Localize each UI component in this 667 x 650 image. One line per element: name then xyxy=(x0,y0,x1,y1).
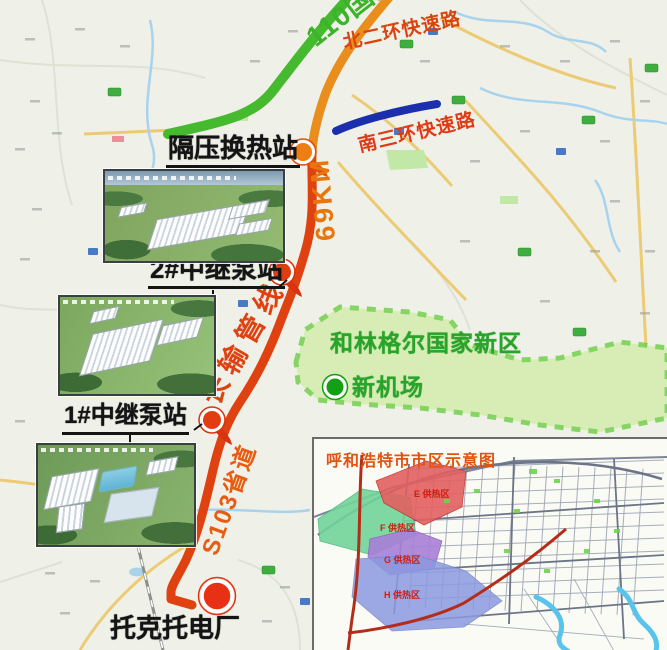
power-plant-marker xyxy=(199,578,236,615)
pipeline-distance-label: 69KM xyxy=(306,156,340,242)
new-area-label: 和林格尔国家新区 xyxy=(330,332,522,355)
inset-title: 呼和浩特市市区示意图 xyxy=(326,447,496,471)
warehouse-building xyxy=(89,305,119,323)
photo-caption-strip xyxy=(41,448,153,452)
zone-H-label: H 供热区 xyxy=(384,588,420,601)
pump-station-1-photo xyxy=(36,443,196,547)
city-inset-map: 呼和浩特市市区示意图 E 供热区 F 供热区 G 供热区 H 供热区 xyxy=(312,437,667,650)
warehouse-building xyxy=(146,456,179,476)
heat-exchange-station-photo xyxy=(103,169,285,263)
airport-label: 新机场 xyxy=(352,376,424,399)
zone-G-label: G 供热区 xyxy=(384,553,421,566)
pump-station-1-label: 1#中继泵站 xyxy=(62,404,189,435)
pond xyxy=(99,465,138,492)
warehouse-building xyxy=(228,199,270,220)
photo-ground xyxy=(38,445,194,545)
warehouse-building xyxy=(118,202,148,218)
heat-exchange-station-label: 隔压换热站 xyxy=(166,135,300,168)
pump-station-2-photo xyxy=(58,295,216,396)
photo-ground xyxy=(60,297,214,394)
inset-heat-zones xyxy=(318,461,502,631)
office-building xyxy=(55,503,84,533)
photo-caption-strip xyxy=(108,176,236,180)
new-area-zone xyxy=(296,307,667,432)
power-plant-label: 托克托电厂 xyxy=(110,615,240,641)
zone-F-label: F 供热区 xyxy=(380,521,415,534)
photo-ground xyxy=(105,185,283,261)
airport-marker xyxy=(323,375,348,400)
flat-roof-building xyxy=(103,487,159,523)
zone-E-label: E 供热区 xyxy=(414,487,450,500)
poi-marker xyxy=(112,136,124,142)
warehouse-building xyxy=(78,319,163,377)
photo-caption-strip xyxy=(63,300,174,304)
pipeline-route-map: 110国道 北二环快速路 南三环快速路 69KM 长输管线 S103省道 隔压换… xyxy=(0,0,667,650)
